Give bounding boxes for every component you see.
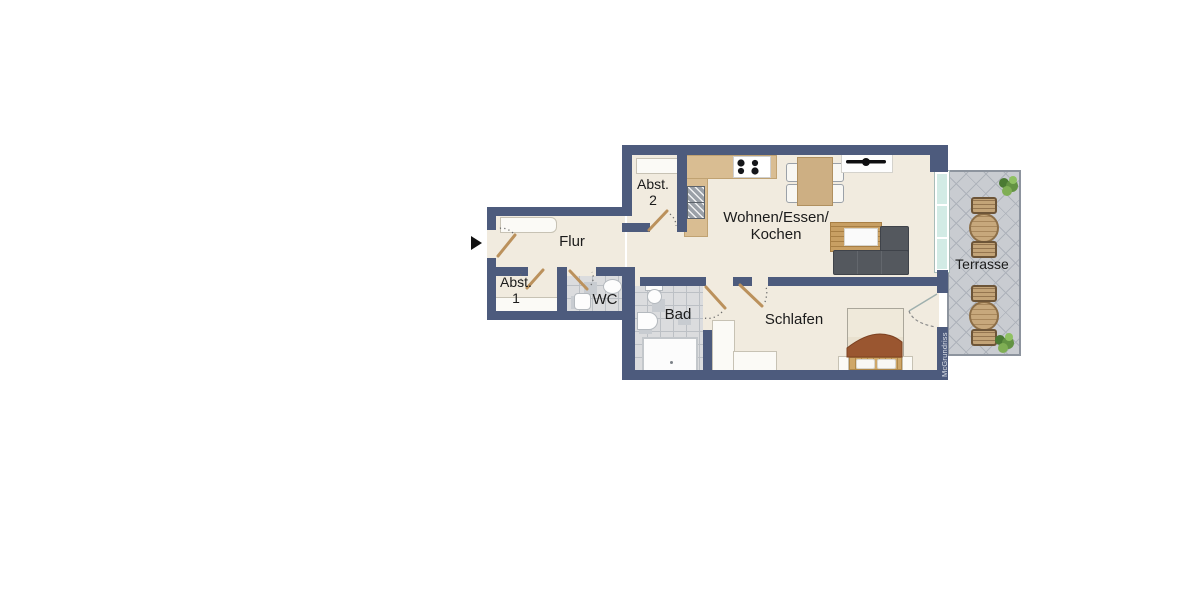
tv-icon (846, 158, 886, 166)
room-label-wc: WC (586, 291, 624, 308)
room-label-wohnen-line2: Kochen (701, 226, 851, 243)
room-label-flur: Flur (544, 233, 600, 250)
terrace-door-swing (909, 294, 937, 327)
room-label-wohnen-line1: Wohnen/Essen/ (701, 209, 851, 226)
room-label-abst2-line1: Abst. (627, 176, 679, 192)
floor-plan-canvas: Abst. 2 Wohnen/Essen/ Kochen Flur Abst. … (0, 0, 1200, 600)
room-label-abst1-line2: 1 (490, 290, 542, 306)
room-label-abst1: Abst. 1 (490, 274, 542, 306)
plant-icon (995, 333, 1014, 353)
plant-icon (999, 176, 1018, 196)
room-label-wohnen: Wohnen/Essen/ Kochen (701, 209, 851, 243)
room-label-abst2: Abst. 2 (627, 176, 679, 208)
stove-burners-icon (737, 159, 758, 174)
bed-blanket (847, 334, 902, 357)
room-label-bad: Bad (658, 306, 698, 323)
room-label-abst2-line2: 2 (627, 192, 679, 208)
room-label-abst1-line1: Abst. (490, 274, 542, 290)
entrance-arrow-icon (471, 236, 482, 250)
room-label-terrasse: Terrasse (944, 256, 1020, 272)
room-label-schlafen: Schlafen (744, 311, 844, 328)
watermark-text: McGrundriss (940, 321, 949, 377)
